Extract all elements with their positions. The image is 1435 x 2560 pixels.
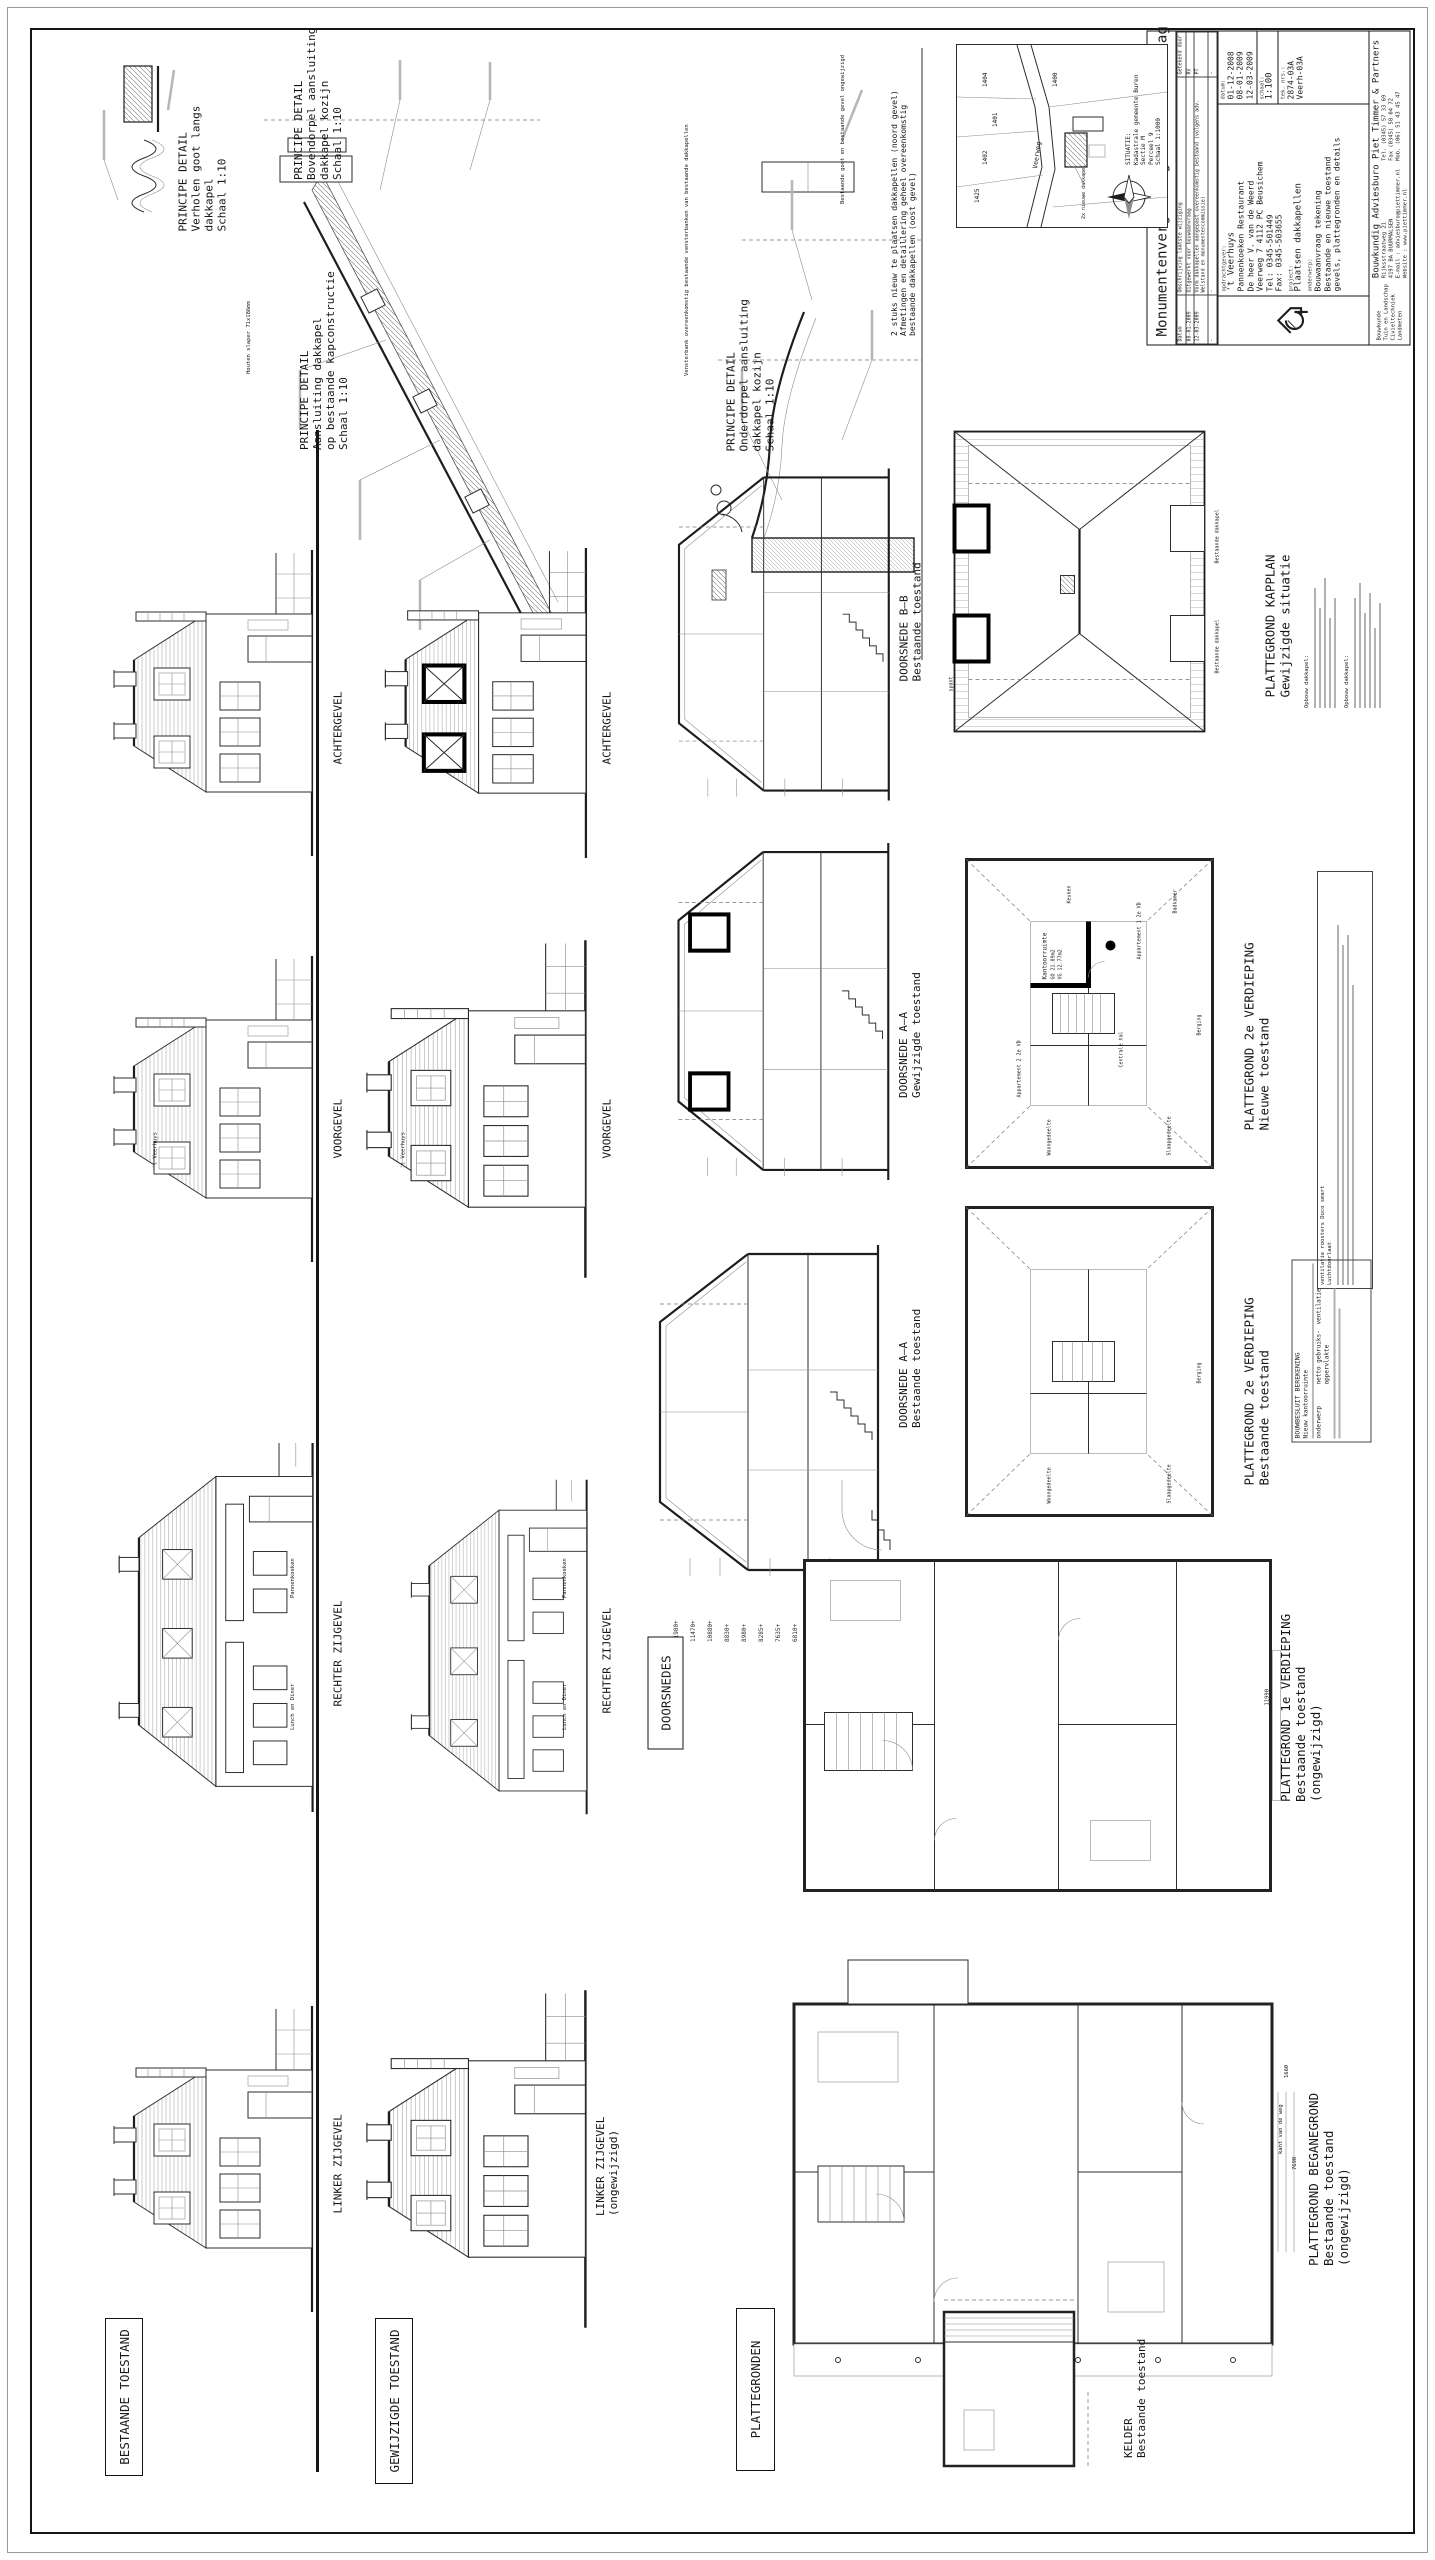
label-kapplan: PLATTEGROND KAPPLANGewijzigde situatie (1262, 542, 1300, 697)
ventilatie-table: ventilatie roosters Duco smart Luchtdoor… (1317, 871, 1373, 1289)
adres-line: Rijksstraatweg 21 (1381, 168, 1388, 277)
contact-line: Mob. (06) 51 43 45 47 (1395, 91, 1402, 161)
adres-line: E-mail : adviesburo@piettimmer.nl (1395, 168, 1402, 277)
schaal-cell: schaal: 1:100 (1257, 31, 1278, 103)
label-rechter-bestaand: RECHTER ZIJGEVEL (331, 1588, 348, 1706)
site-annotation: 2x nieuwe dakkapel (1081, 165, 1087, 219)
doorsnede-aa-gewijzigd-drawing (640, 843, 895, 1180)
dim-1e-verdieping: 11990 (1264, 1660, 1274, 1705)
rev-header-datum: Datum (1177, 295, 1186, 344)
kelder-drawing (928, 2288, 1096, 2490)
datum-cell: datum: 01-12-2008 08-01-2009 12-03-2009 (1218, 31, 1258, 103)
adres-line: 4197 BA BUURMALSEN (1388, 168, 1395, 277)
rev-row: 08-01-2009Uitgewerkt voor bouwaanvraagRV (1185, 32, 1194, 344)
room-label: Appartement 2 2e VD (1016, 1040, 1022, 1097)
rev-header-omschrijving: Omschrijving laatste wijziging (1177, 77, 1186, 295)
room-label: Woongedeelte (1046, 1119, 1052, 1155)
dormer-label: Bestaande dakkapel (1214, 619, 1220, 673)
parcel-number: 1404 (982, 72, 989, 87)
room-label: Appartement 1 2e VD (1136, 902, 1142, 959)
bureau-naam: Bouwkundig Adviesburo Piet Timmer & Part… (1371, 35, 1381, 278)
plattegrond-2e-nieuw-drawing: Kantoorruimte GO 21.89m2 VG 12.77m2 Appa… (950, 840, 1228, 1185)
north-arrow-icon (1107, 175, 1151, 219)
group-label-bestaande-toestand: BESTAANDE TOESTAND (105, 2318, 143, 2476)
sign-veerhuys: 't Veerhuys (152, 1108, 165, 1168)
dim-bg-stoep: 1660 (1284, 2052, 1294, 2078)
site-caption: SITUATIE: Kadastrale gemeente Buren Sect… (1125, 75, 1163, 165)
label-voorgevel-bestaand: VOORGEVEL (331, 1086, 348, 1158)
room-label: VG 12.77m2 (1057, 949, 1063, 979)
linker-zijgevel-gewijzigd-drawing (352, 1988, 592, 2330)
bouwbesluit-table: BOUWBESLUIT BEREKENING Nieuw kantoorruim… (1291, 1259, 1371, 1442)
title-block: Monumentenvergunning en Bouwaanvraag Dat… (1146, 30, 1410, 345)
opdrachtgever-line: De heer V. van de Weerd (1246, 108, 1256, 291)
sign-pannenkoeken: Pannenkoeken (562, 1508, 574, 1598)
rechter-zijgevel-bestaand-drawing (95, 1438, 318, 1816)
label-1e-verdieping: PLATTEGROND 1e VERDIEPINGBestaande toest… (1278, 1612, 1324, 1802)
opdrachtgever-line: Fax: 0345-503655 (1274, 108, 1284, 291)
sign-lunch-diner: Lunch en Diner (290, 1640, 302, 1730)
contact-line: Tel. (0345) 57 33 69 (1381, 91, 1388, 161)
parcel-number: 1402 (982, 150, 989, 165)
label-detail-aansluiting: PRINCIPE DETAILAansluiting dakkapel op b… (298, 346, 362, 450)
label-linker-gewijzigd: LINKER ZIJGEVEL(ongewijzigd) (594, 2098, 624, 2216)
opdrachtgever-line: Pannenkoeken Restaurant (1236, 108, 1246, 291)
sign-lunch-diner: Lunch en Diner (562, 1640, 574, 1730)
dienst-item: Bouwkunde (1376, 284, 1383, 340)
sign-pannenkoeken: Pannenkoeken (290, 1508, 302, 1598)
parcel-number: 1401 (992, 112, 999, 127)
label-detail-verholen-goot: PRINCIPE DETAILVerholen goot langs dakka… (176, 86, 236, 231)
label-linker-bestaand: LINKER ZIJGEVEL (331, 2103, 348, 2213)
voorgevel-gewijzigd-drawing (352, 938, 592, 1280)
drawing-sheet: Monumentenvergunning en Bouwaanvraag Dat… (0, 0, 1435, 2560)
room-label: Centrale hal (1118, 1031, 1124, 1067)
rechter-zijgevel-gewijzigd-drawing (352, 1478, 592, 1816)
room-label: Woongedeelte (1046, 1467, 1052, 1503)
annotation-slaper: Houten slaper 71x186mm (246, 302, 256, 374)
rev-header-getekend: Getekend door (1177, 32, 1186, 77)
room-label: Berging (1196, 1014, 1202, 1035)
label-doorsnede-aa-bestaand: DOORSNEDE A–ABestaande toestand (897, 1298, 929, 1428)
parcel-number: 1400 (1052, 72, 1059, 87)
group-label-gewijzigde-toestand: GEWIJZIGDE TOESTAND (375, 2318, 413, 2484)
voorgevel-bestaand-drawing (108, 938, 318, 1280)
project-value: Plaatsen dakkapellen (1294, 108, 1304, 291)
label-achtergevel-bestaand: ACHTERGEVEL (331, 676, 348, 764)
room-label: Berging (1196, 1362, 1202, 1383)
annotation-vensterbank: Vensterbank overeenkomstig bestaande ven… (684, 292, 700, 376)
group-label-plattegronden: PLATTEGRONDEN (736, 2308, 775, 2471)
dim-bg-diepte: 7690 (1292, 2140, 1302, 2170)
annotation-goot: Bestaande goot en bestaande gevel ongewi… (840, 56, 860, 204)
site-plan: 1425 1402 1401 1404 1400 Veerweg 2x nieu… (956, 44, 1168, 228)
dienst-item: Landmeten (1397, 284, 1404, 340)
onderwerp-line: Bouwaanvraag tekening (1313, 108, 1323, 291)
room-label: Slaapgedeelte (1166, 1464, 1172, 1503)
opdrachtgever-line: Veerweg 7 4112 PC Beusichem (1255, 108, 1265, 291)
sign-veerhuys: 't Veerhuys (400, 1108, 413, 1168)
label-achtergevel-gewijzigd: ACHTERGEVEL (600, 676, 617, 764)
opdrachtgever-naam: 't Veerhuys (1227, 108, 1237, 291)
label-rechter-gewijzigd: RECHTER ZIJGEVEL (600, 1595, 617, 1713)
label-detail-bovendorpel: PRINCIPE DETAILBovendorpel aansluiting d… (292, 40, 356, 180)
label-detail-onderdorpel: PRINCIPE DETAILOnderdorpel aansluiting d… (724, 296, 786, 451)
annotation-kant-weg: kant van de weg (1278, 2098, 1286, 2154)
room-label: GO 21.89m2 (1050, 949, 1056, 979)
doorsnede-bb-drawing (640, 468, 895, 800)
room-label: Keuken (1066, 885, 1072, 903)
bureau-logo (1218, 295, 1368, 344)
achtergevel-gewijzigd-drawing (352, 546, 592, 860)
dormer-label: Bestaande dakkapel (1214, 509, 1220, 563)
label-beganegrond: PLATTEGROND BEGANEGRONDBestaande toestan… (1306, 2076, 1352, 2266)
onderwerp-line: Bestaande en nieuwe toestand (1323, 108, 1333, 291)
opdrachtgever-line: Tel: 0345-501449 (1265, 108, 1275, 291)
adres-line: Website : www.piettimmer.nl (1402, 168, 1409, 277)
room-label: Kantoorruimte (1041, 932, 1048, 979)
onderwerp-line: gevels, plattegronden en details (1332, 108, 1342, 291)
label-2e-verdieping-nieuw: PLATTEGROND 2e VERDIEPINGNieuwe toestand (1241, 925, 1285, 1130)
contact-line: Fax (0345) 58 04 72 (1388, 91, 1395, 161)
label-2e-verdieping-bestaand: PLATTEGROND 2e VERDIEPINGBestaande toest… (1241, 1280, 1285, 1485)
onderwerp-label: onderwerp: (1307, 108, 1313, 291)
parcel-number: 1425 (974, 188, 981, 203)
plattegrond-1e-verdieping-drawing (790, 1535, 1282, 1920)
label-doorsnede-aa-gewijzigd: DOORSNEDE A–AGewijzigde toestand (897, 968, 929, 1098)
teknr-cell: tek. nrs.: 2874-03A Veerh-03A (1278, 31, 1307, 103)
rev-row: 12-03-2009Vorm dakkapellen aangepast ove… (1194, 32, 1208, 344)
group-label-doorsnedes: DOORSNEDES (647, 1636, 683, 1749)
spant-label: spant (948, 676, 954, 691)
linker-zijgevel-bestaand-drawing (108, 1988, 318, 2330)
room-label: Slaapgedeelte (1166, 1116, 1172, 1155)
dienst-item: Tuin en Landschap (1383, 284, 1390, 340)
kapplan-drawing: spant Bestaande dakkapel Bestaande dakka… (940, 418, 1228, 743)
achtergevel-bestaand-drawing (108, 546, 318, 860)
kapplan-notes: Opbouw dakkapel: Opbouw dakkapel: (1304, 408, 1360, 708)
plattegrond-2e-bestaand-drawing: Woongedeelte Slaapgedeelte Berging (950, 1188, 1228, 1533)
label-doorsnede-bb: DOORSNEDE B–BBestaande toestand (897, 556, 929, 681)
bureau-footer: Bouwkunde Tuin en Landschap Civieltechni… (1368, 31, 1411, 344)
detail-verholen-goot-drawing (98, 52, 182, 220)
revision-table: Datum Omschrijving laatste wijziging Get… (1176, 31, 1217, 344)
dienst-item: Civieltechniek (1390, 284, 1397, 340)
room-label: Badkamer (1172, 889, 1178, 913)
rev-row: --- (1208, 32, 1217, 344)
label-kelder: KELDERBestaande toestand (1122, 2318, 1152, 2458)
label-voorgevel-gewijzigd: VOORGEVEL (600, 1086, 617, 1158)
